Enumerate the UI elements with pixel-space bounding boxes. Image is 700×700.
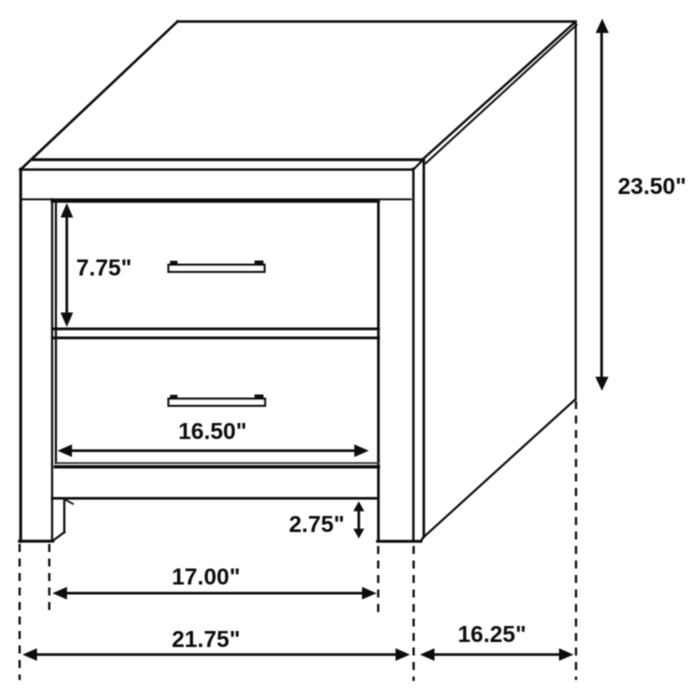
svg-text:7.75": 7.75" <box>76 255 132 281</box>
svg-text:16.25": 16.25" <box>458 621 526 647</box>
svg-text:23.50": 23.50" <box>618 173 686 199</box>
svg-text:17.00": 17.00" <box>172 564 240 590</box>
svg-text:21.75": 21.75" <box>172 626 240 652</box>
svg-text:2.75": 2.75" <box>289 511 345 537</box>
svg-text:16.50": 16.50" <box>178 418 246 444</box>
